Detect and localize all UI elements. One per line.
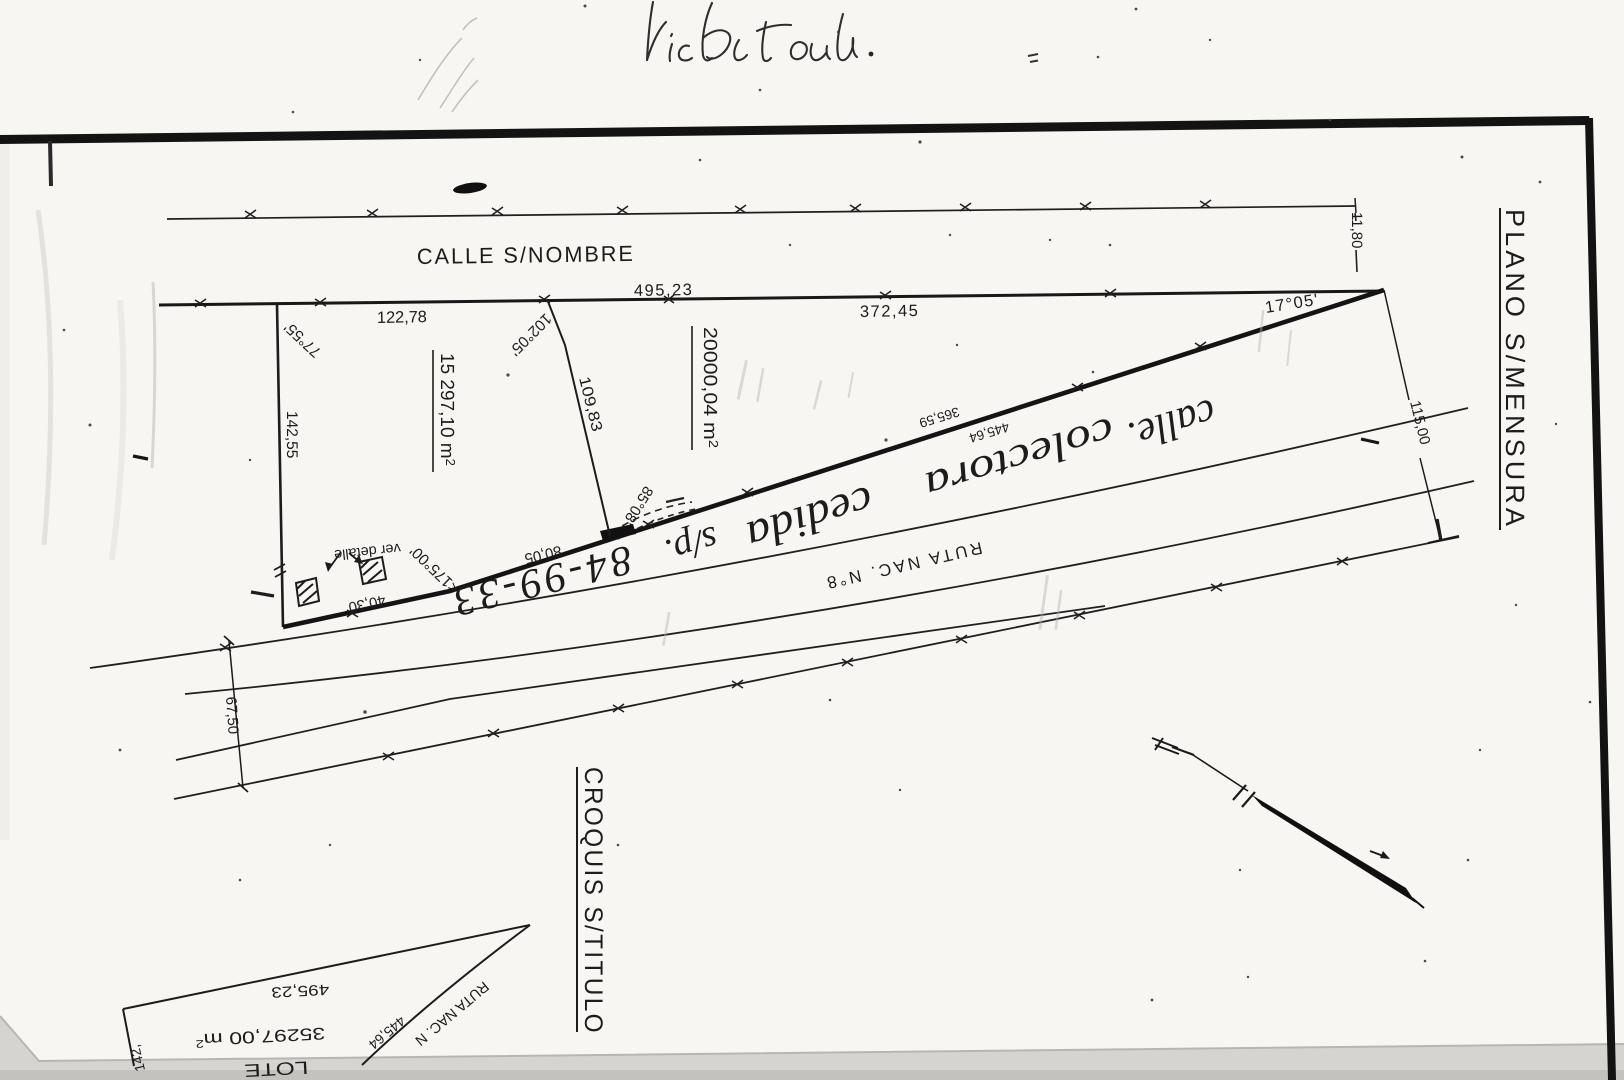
svg-text:PLANO S/MENSURA: PLANO S/MENSURA (1500, 209, 1530, 530)
svg-text:15 297,10 m2: 15 297,10 m2 (436, 353, 458, 466)
svg-text:122,78: 122,78 (377, 308, 427, 327)
svg-text:CALLE S/NOMBRE: CALLE S/NOMBRE (417, 241, 635, 269)
svg-text:LOTE: LOTE (244, 1057, 309, 1080)
svg-text:495,23: 495,23 (271, 980, 330, 1000)
svg-text:11,80: 11,80 (1348, 212, 1365, 248)
svg-text:142,55: 142,55 (283, 411, 300, 458)
svg-text:CROQUIS S/TITULO: CROQUIS S/TITULO (579, 767, 607, 1035)
svg-text:67,50: 67,50 (222, 696, 242, 735)
svg-text:372,45: 372,45 (860, 302, 918, 321)
svg-text:495,23: 495,23 (634, 281, 692, 300)
svg-text:20000,04 m2: 20000,04 m2 (699, 327, 721, 448)
